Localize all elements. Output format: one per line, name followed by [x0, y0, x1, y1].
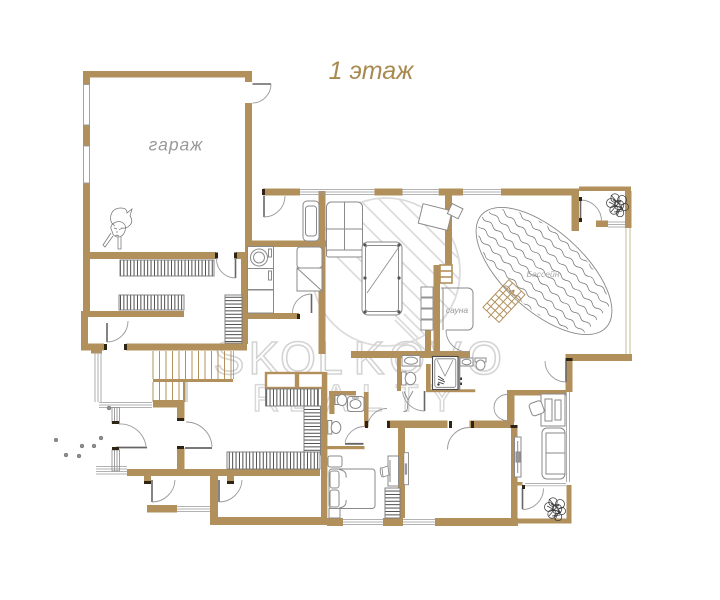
svg-text:1 этаж: 1 этаж	[329, 57, 416, 85]
svg-text:гараж: гараж	[149, 135, 204, 155]
svg-text:Бассейн: Бассейн	[527, 269, 560, 279]
svg-text:сауна: сауна	[446, 305, 469, 315]
